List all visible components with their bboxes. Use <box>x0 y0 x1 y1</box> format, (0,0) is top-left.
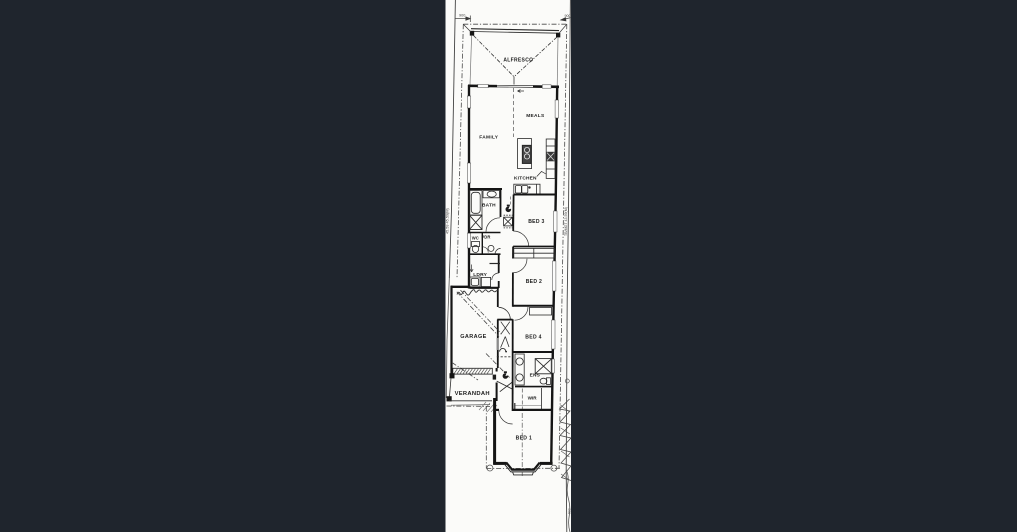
svg-text:GARAGE: GARAGE <box>460 334 487 340</box>
svg-text:FAMILY: FAMILY <box>479 134 498 140</box>
svg-text:900: 900 <box>565 14 571 18</box>
svg-text:45.59 45.59(M): 45.59 45.59(M) <box>446 208 450 234</box>
svg-text:BED 2: BED 2 <box>526 279 543 285</box>
svg-text:BATH: BATH <box>482 203 496 209</box>
svg-text:VERANDAH: VERANDAH <box>455 391 490 397</box>
svg-text:BED 3: BED 3 <box>528 219 545 225</box>
svg-text:ENS: ENS <box>530 372 541 378</box>
svg-text:MEALS: MEALS <box>526 113 545 119</box>
svg-text:BED 4: BED 4 <box>525 334 542 340</box>
svg-text:TB/MGT 43.59(M): TB/MGT 43.59(M) <box>564 207 568 236</box>
svg-text:WC: WC <box>472 235 479 240</box>
svg-text:KITCHEN: KITCHEN <box>514 175 537 181</box>
svg-text:BED 1: BED 1 <box>516 436 533 442</box>
svg-text:ALFRESCO: ALFRESCO <box>503 58 533 64</box>
svg-text:900: 900 <box>459 14 465 18</box>
svg-text:WIR: WIR <box>528 395 538 400</box>
